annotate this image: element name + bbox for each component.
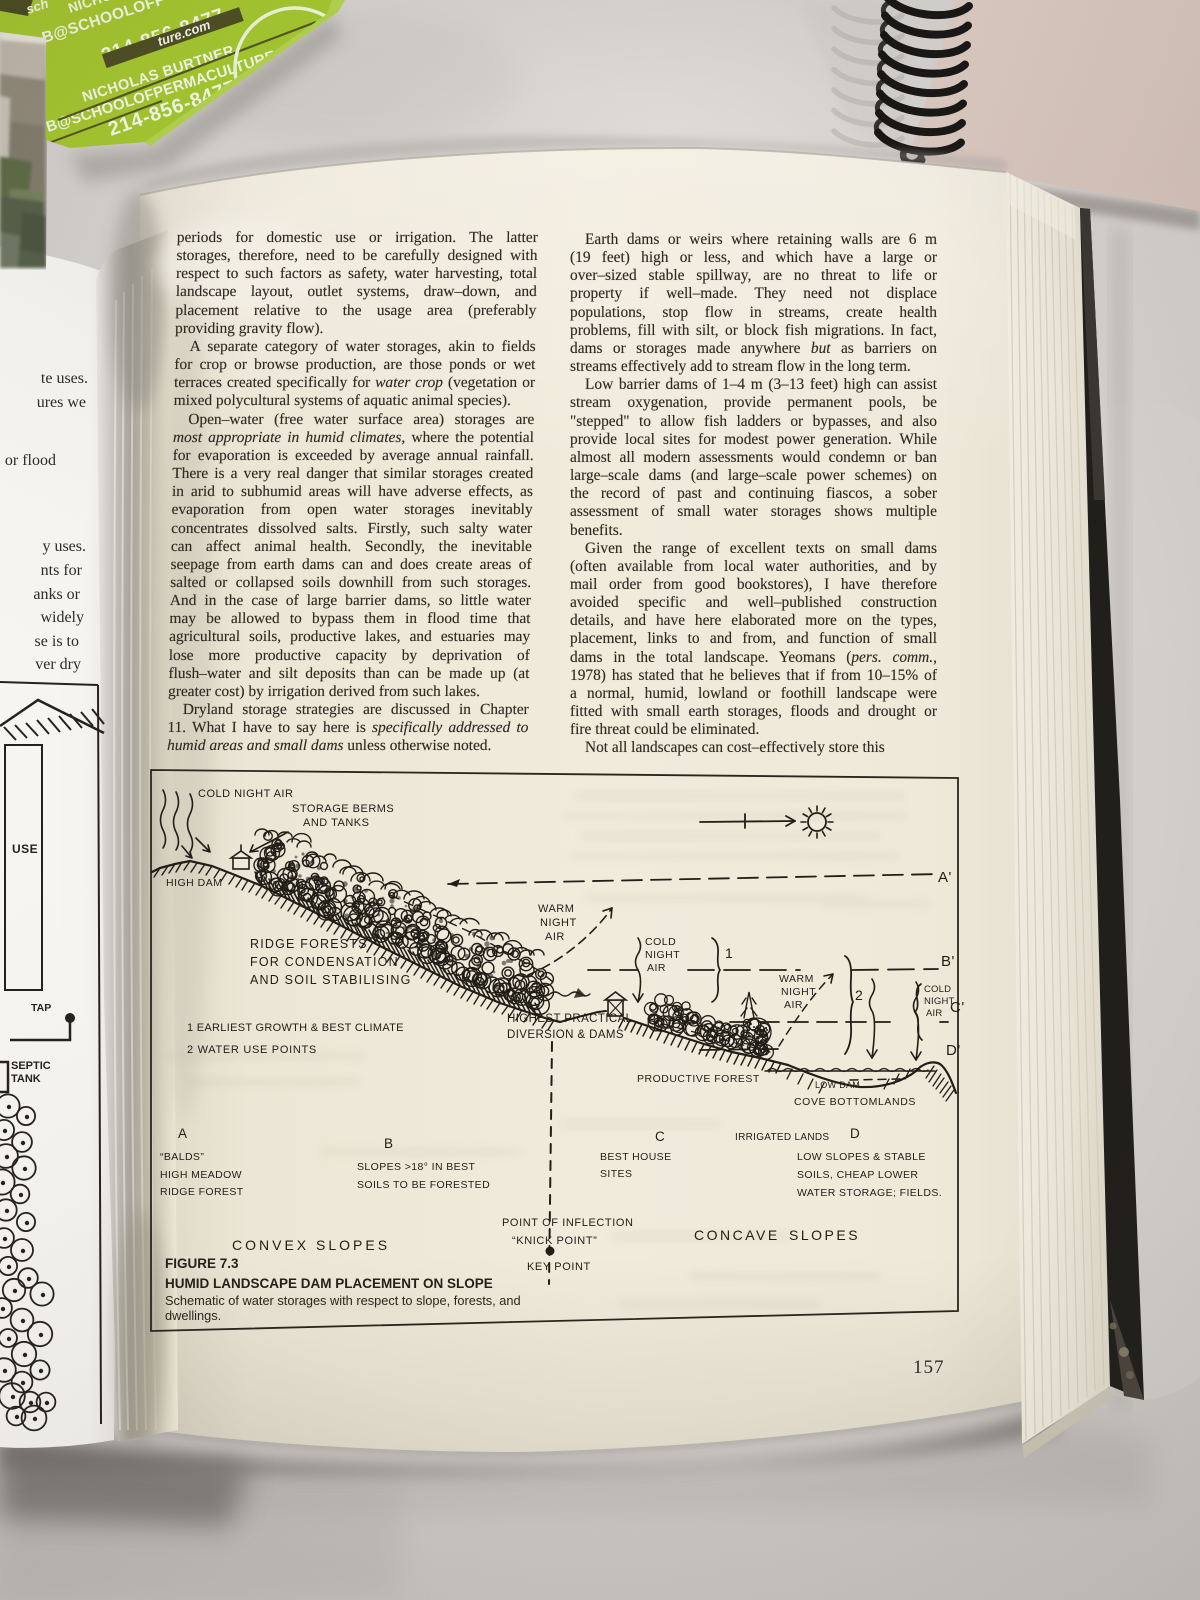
svg-text:dwellings.: dwellings. [165, 1308, 221, 1323]
svg-text:HIGH DAM: HIGH DAM [166, 877, 223, 889]
svg-text:POINT OF INFLECTION: POINT OF INFLECTION [502, 1217, 634, 1229]
svg-text:D: D [850, 1126, 860, 1141]
svg-text:SOILS TO BE FORESTED: SOILS TO BE FORESTED [357, 1179, 490, 1191]
svg-text:HUMID LANDSCAPE DAM PLACEMENT: HUMID LANDSCAPE DAM PLACEMENT ON SLOPE [165, 1276, 493, 1291]
svg-text:NIGHT: NIGHT [781, 986, 816, 998]
svg-text:WATER STORAGE; FIELDS.: WATER STORAGE; FIELDS. [797, 1187, 942, 1199]
svg-text:FIGURE 7.3: FIGURE 7.3 [165, 1256, 239, 1271]
svg-text:RIDGE FOREST: RIDGE FOREST [160, 1186, 244, 1198]
svg-text:1 EARLIEST GROWTH & BEST CLIMA: 1 EARLIEST GROWTH & BEST CLIMATE [187, 1022, 404, 1034]
svg-text:AIR: AIR [545, 931, 565, 943]
svg-text:FOR CONDENSATION: FOR CONDENSATION [250, 955, 399, 969]
svg-text:D': D' [946, 1042, 961, 1059]
svg-text:BEST HOUSE: BEST HOUSE [600, 1151, 672, 1163]
svg-text:2: 2 [855, 987, 863, 1003]
svg-text:B': B' [941, 953, 955, 970]
svg-text:LOW SLOPES & STABLE: LOW SLOPES & STABLE [797, 1151, 926, 1163]
svg-text:B: B [384, 1136, 394, 1151]
svg-text:1: 1 [725, 945, 733, 961]
svg-text:COLD NIGHT AIR: COLD NIGHT AIR [198, 788, 293, 800]
svg-text:AIR: AIR [647, 962, 666, 974]
svg-text:A': A' [938, 869, 952, 886]
svg-text:KEY POINT: KEY POINT [527, 1261, 591, 1273]
svg-text:CONCAVE: CONCAVE [694, 1227, 780, 1243]
svg-text:NIGHT: NIGHT [540, 917, 577, 929]
svg-text:HIGH MEADOW: HIGH MEADOW [160, 1169, 242, 1181]
svg-text:C': C' [950, 999, 965, 1016]
svg-text:Schematic of water storages wi: Schematic of water storages with respect… [165, 1293, 521, 1308]
svg-text:COLD: COLD [924, 984, 951, 995]
svg-text:C: C [655, 1129, 665, 1144]
svg-text:SLOPES: SLOPES [789, 1227, 860, 1243]
svg-text:AND TANKS: AND TANKS [303, 817, 369, 829]
svg-text:HIGHEST PRACTICAL: HIGHEST PRACTICAL [507, 1013, 633, 1025]
svg-text:COLD: COLD [645, 936, 676, 948]
svg-text:CONVEX SLOPES: CONVEX SLOPES [232, 1237, 390, 1253]
svg-text:NIGHT: NIGHT [645, 949, 680, 961]
svg-text:PRODUCTIVE FOREST: PRODUCTIVE FOREST [637, 1073, 760, 1085]
svg-text:COVE BOTTOMLANDS: COVE BOTTOMLANDS [794, 1096, 916, 1108]
svg-text:AIR: AIR [926, 1008, 942, 1019]
svg-text:AIR: AIR [784, 999, 803, 1011]
svg-text:SITES: SITES [600, 1168, 632, 1180]
svg-text:2 WATER USE POINTS: 2 WATER USE POINTS [187, 1044, 317, 1056]
svg-text:DIVERSION & DAMS: DIVERSION & DAMS [507, 1029, 624, 1041]
svg-text:SLOPES >18° IN BEST: SLOPES >18° IN BEST [357, 1161, 475, 1173]
svg-text:SOILS, CHEAP LOWER: SOILS, CHEAP LOWER [797, 1169, 918, 1181]
svg-text:IRRIGATED LANDS: IRRIGATED LANDS [735, 1132, 829, 1143]
svg-text:WARM: WARM [779, 973, 814, 985]
svg-text:LOW DAM: LOW DAM [815, 1080, 860, 1090]
svg-text:A: A [178, 1126, 188, 1141]
svg-text:“KNICK POINT”: “KNICK POINT” [512, 1235, 597, 1247]
svg-text:AND SOIL STABILISING: AND SOIL STABILISING [250, 973, 412, 987]
svg-text:“BALDS”: “BALDS” [160, 1151, 204, 1163]
svg-text:STORAGE BERMS: STORAGE BERMS [292, 803, 394, 815]
svg-text:RIDGE FORESTS: RIDGE FORESTS [250, 937, 368, 951]
svg-text:WARM: WARM [538, 903, 574, 915]
